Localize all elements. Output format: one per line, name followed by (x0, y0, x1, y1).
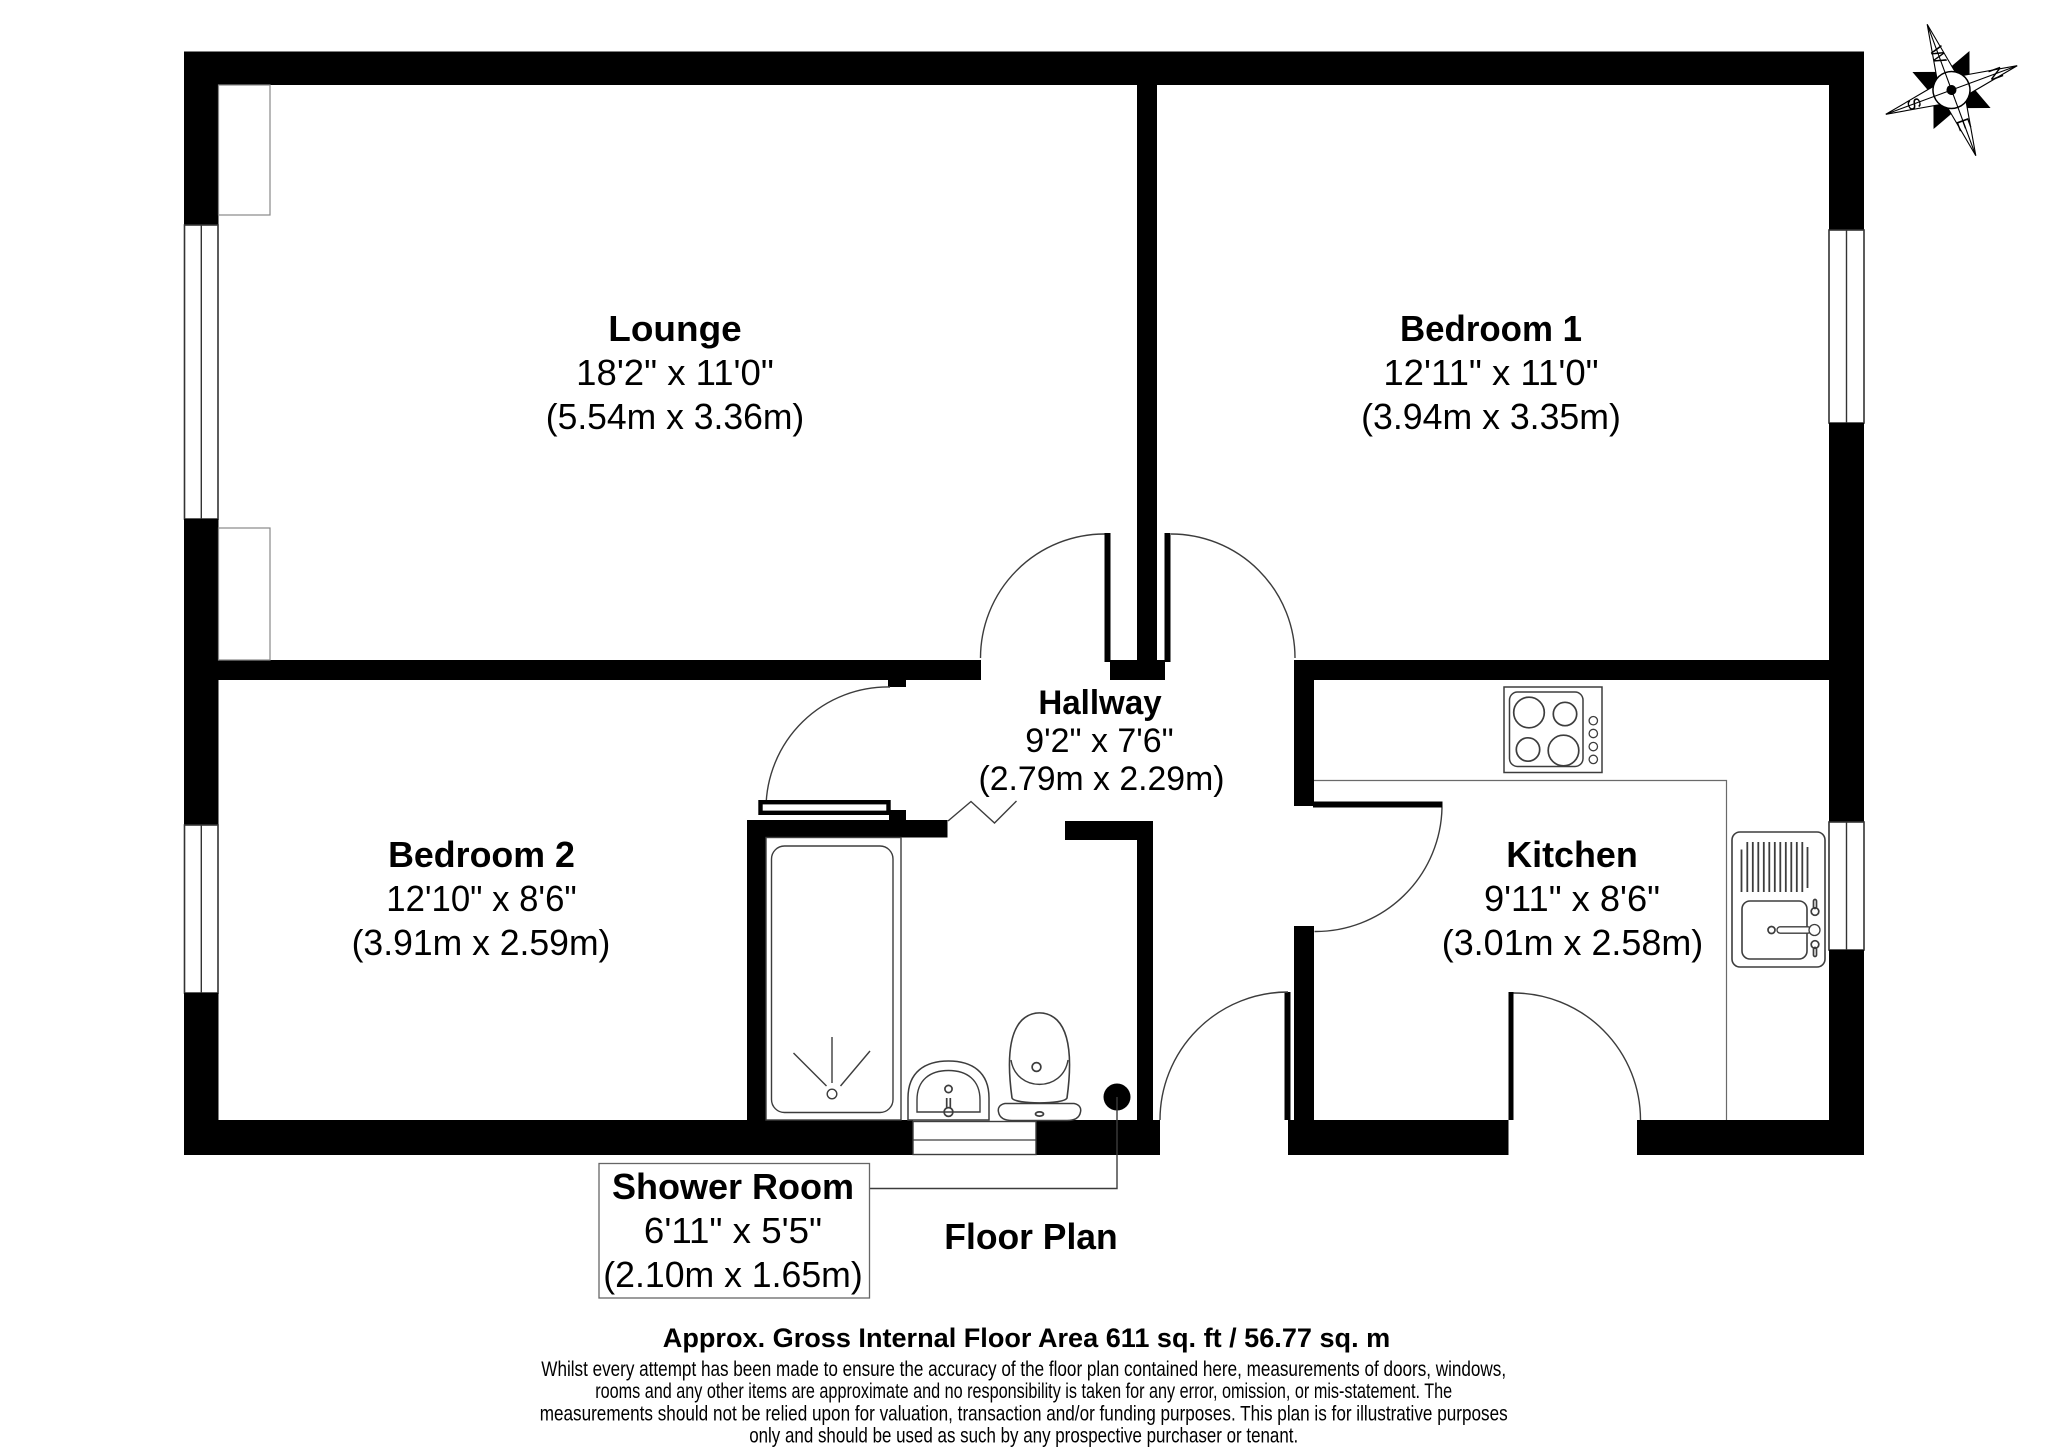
svg-text:Approx. Gross Internal Floor A: Approx. Gross Internal Floor Area 611 sq… (663, 1323, 1390, 1353)
svg-text:(2.79m x 2.29m): (2.79m x 2.29m) (979, 760, 1225, 798)
svg-text:only and should be used as suc: only and should be used as such by any p… (749, 1425, 1298, 1447)
svg-text:Hallway: Hallway (1038, 684, 1161, 722)
svg-text:rooms and any other items are: rooms and any other items are approximat… (595, 1380, 1452, 1403)
svg-text:Floor Plan: Floor Plan (944, 1216, 1117, 1257)
svg-text:12'11" x 11'0": 12'11" x 11'0" (1383, 352, 1598, 393)
svg-text:(3.91m x 2.59m): (3.91m x 2.59m) (352, 922, 611, 963)
svg-text:(2.10m x 1.65m): (2.10m x 1.65m) (603, 1254, 862, 1295)
svg-text:6'11" x 5'5": 6'11" x 5'5" (644, 1210, 822, 1251)
svg-text:Shower Room: Shower Room (612, 1166, 854, 1207)
svg-text:Bedroom 2: Bedroom 2 (388, 834, 575, 875)
svg-text:12'10" x 8'6": 12'10" x 8'6" (386, 878, 576, 919)
svg-text:Whilst every attempt has been: Whilst every attempt has been made to en… (541, 1358, 1506, 1381)
svg-text:18'2" x 11'0": 18'2" x 11'0" (576, 352, 774, 393)
svg-text:(5.54m x 3.36m): (5.54m x 3.36m) (546, 396, 805, 437)
svg-text:(3.94m x 3.35m): (3.94m x 3.35m) (1361, 396, 1621, 437)
svg-text:Bedroom 1: Bedroom 1 (1400, 308, 1582, 349)
svg-text:Lounge: Lounge (608, 308, 741, 349)
svg-text:(3.01m x 2.58m): (3.01m x 2.58m) (1442, 922, 1704, 963)
svg-text:measurements should not be rel: measurements should not be relied upon f… (540, 1402, 1508, 1425)
svg-text:Kitchen: Kitchen (1506, 834, 1638, 875)
svg-text:9'2" x 7'6": 9'2" x 7'6" (1025, 722, 1173, 760)
svg-text:9'11" x 8'6": 9'11" x 8'6" (1484, 878, 1660, 919)
